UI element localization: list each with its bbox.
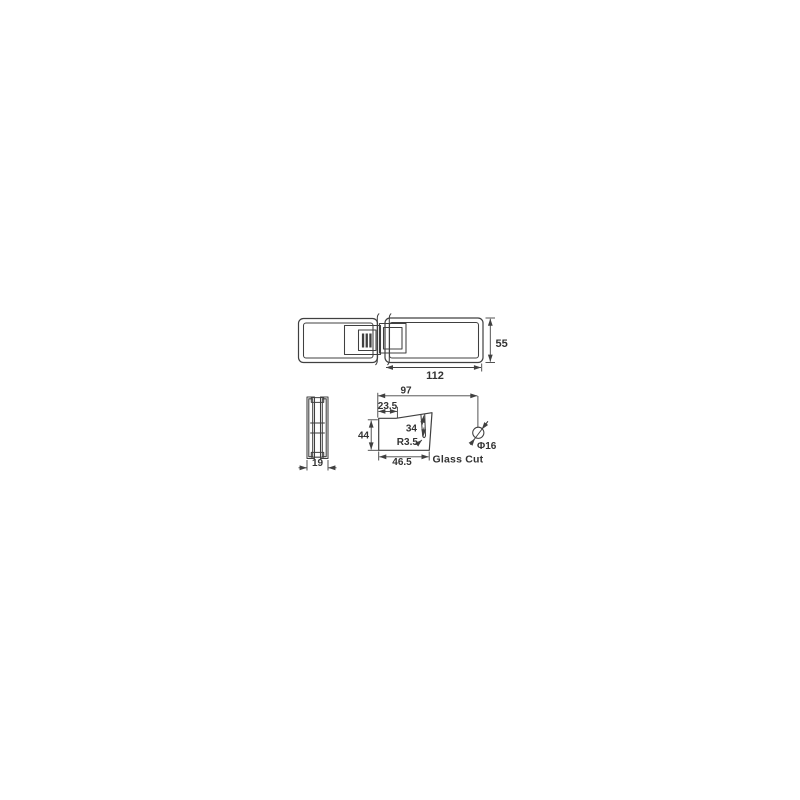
latch-grip-bar	[366, 334, 368, 348]
radius-callout-r3-5: R3.5	[397, 437, 422, 448]
dimension-notch-offset-23-5: 23.5	[378, 401, 398, 418]
dimension-label: 23.5	[378, 401, 398, 412]
dimension-label: 97	[400, 386, 412, 397]
dimension-label: Φ16	[477, 441, 497, 452]
dimension-label: 46.5	[392, 457, 412, 468]
dimension-cut-width-46-5: 46.5	[379, 452, 430, 469]
drawing-canvas: 55 112 19	[0, 0, 800, 800]
assembly-top-view: 55 112	[299, 314, 508, 383]
dimension-arrow	[423, 428, 424, 437]
diameter-arrow	[482, 421, 488, 429]
glass-cut-view: 97 23.5 44 34	[358, 386, 497, 468]
right-plate-outline	[385, 318, 483, 363]
dimension-label: 112	[426, 370, 444, 382]
latch-grip-bar	[362, 334, 364, 348]
clamp-left-leaf-inner	[309, 399, 313, 457]
dimension-cut-height-44: 44	[358, 420, 379, 451]
strike-plate-inner-outline	[384, 328, 403, 350]
latch-grip-bar	[369, 334, 371, 348]
dimension-label: 19	[312, 458, 324, 469]
dimension-label: R3.5	[397, 437, 419, 448]
glass-cut-caption: Glass Cut	[433, 454, 484, 466]
dimension-label: 34	[406, 424, 418, 435]
dimension-height-55: 55	[486, 318, 508, 363]
dimension-label: 44	[358, 431, 370, 442]
clamp-left-leaf	[307, 397, 315, 459]
dimension-arrow	[422, 416, 424, 425]
hole-diameter-callout-phi16: Φ16	[470, 421, 496, 452]
dimension-label: 55	[496, 338, 508, 350]
diameter-arrow	[470, 439, 475, 445]
dimension-length-112: 112	[386, 364, 482, 383]
clamp-right-leaf	[321, 397, 329, 459]
dimension-thickness-19: 19	[299, 458, 337, 471]
clamp-right-leaf-inner	[322, 399, 326, 457]
end-view: 19	[299, 397, 337, 471]
technical-drawing: 55 112 19	[0, 0, 800, 800]
